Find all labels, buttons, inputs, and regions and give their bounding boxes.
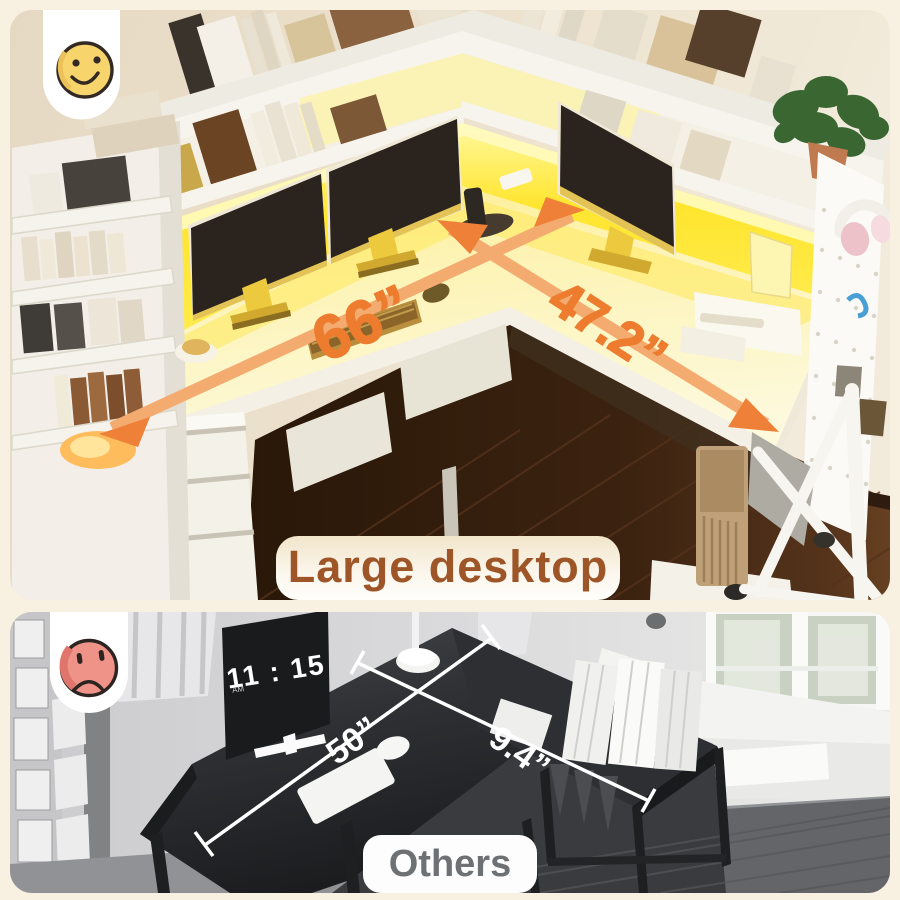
svg-text:Others: Others (389, 843, 511, 885)
svg-text:AM: AM (231, 684, 245, 695)
svg-text:Large desktop: Large desktop (288, 541, 609, 592)
